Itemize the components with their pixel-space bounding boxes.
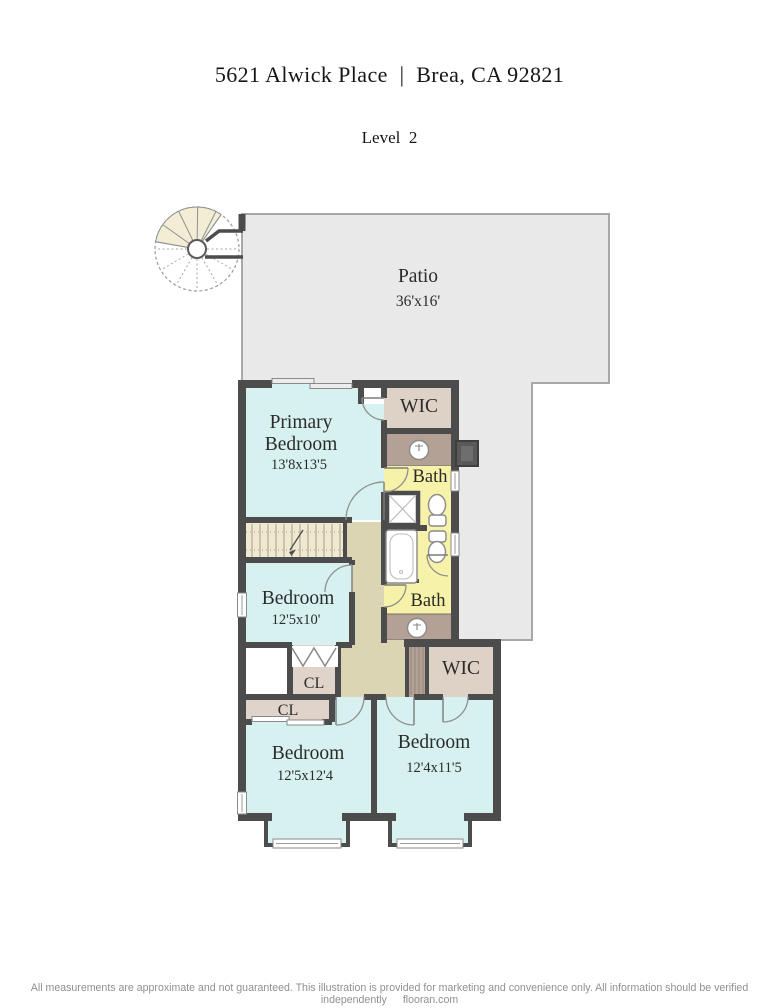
bedroom-bottom-left-label: Bedroom <box>272 743 345 764</box>
bedroom-bottom-right-label: Bedroom <box>398 732 471 753</box>
shower-icon <box>387 493 418 525</box>
linen-closet-area <box>407 645 427 697</box>
window-icon <box>273 839 341 848</box>
spiral-staircase-icon <box>155 207 243 291</box>
footer-disclaimer-bar: All measurements are approximate and not… <box>0 982 779 1006</box>
sink-icon <box>408 619 427 638</box>
primary-bedroom-label-line1: Primary <box>270 412 333 433</box>
bedroom-bottom-right-dims: 12'4x11'5 <box>406 760 461 776</box>
window-icon <box>397 839 463 848</box>
staircase-area <box>244 522 345 560</box>
bath-primary-label: Bath <box>413 467 448 487</box>
bedroom-middle-label: Bedroom <box>262 588 335 609</box>
toilet-icon <box>429 531 447 563</box>
window-icon <box>238 792 247 814</box>
closet-middle-label: CL <box>304 675 324 692</box>
floor-plan-page: 5621 Alwick Place | Brea, CA 92821 Level… <box>0 0 779 1008</box>
bedroom-bottom-left-dims: 12'5x12'4 <box>277 768 334 784</box>
bath-hall-label: Bath <box>411 591 446 611</box>
primary-bedroom-label-line2: Bedroom <box>265 434 338 455</box>
wic-primary-label: WIC <box>400 396 438 417</box>
closet-lower-label: CL <box>278 702 298 719</box>
toilet-icon <box>429 495 447 527</box>
window-icon <box>238 593 247 617</box>
brand-text: flooran.com <box>403 994 458 1006</box>
wic-bottom-label: WIC <box>442 658 480 679</box>
bathtub-icon <box>386 530 417 583</box>
disclaimer-text: All measurements are approximate and not… <box>31 982 748 1006</box>
floor-plan-canvas: Patio 36'x16' Primary Bedroom 13'8x13'5 … <box>0 0 779 1008</box>
window-icon <box>451 533 459 556</box>
fireplace-icon <box>456 441 478 466</box>
sink-icon <box>410 441 429 460</box>
bifold-door-icon <box>292 646 338 667</box>
patio-dims: 36'x16' <box>396 293 441 310</box>
window-icon <box>451 471 459 491</box>
primary-bedroom-dims: 13'8x13'5 <box>271 457 327 473</box>
patio-label: Patio <box>398 266 438 287</box>
bedroom-middle-dims: 12'5x10' <box>272 612 321 628</box>
